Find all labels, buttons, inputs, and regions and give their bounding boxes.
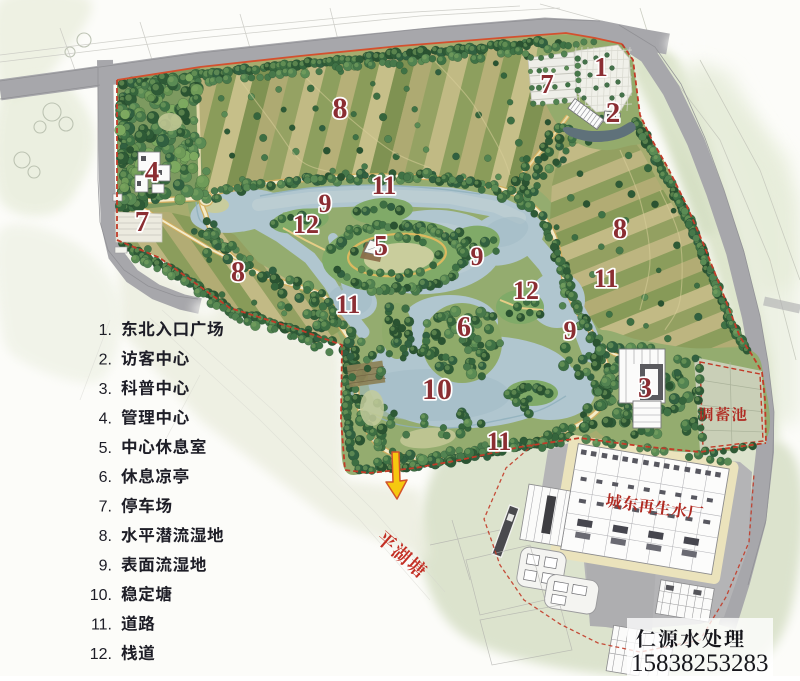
svg-text:6: 6: [457, 312, 471, 343]
svg-text:7: 7: [135, 206, 150, 238]
svg-text:8: 8: [333, 92, 348, 125]
svg-text:5: 5: [374, 231, 388, 262]
svg-text:9: 9: [564, 316, 577, 345]
svg-text:2: 2: [606, 97, 621, 129]
svg-text:4: 4: [145, 156, 160, 188]
svg-text:11: 11: [336, 290, 361, 319]
svg-text:12: 12: [293, 210, 319, 239]
svg-text:3.: 3.: [99, 381, 112, 398]
svg-text:11: 11: [372, 171, 397, 200]
svg-text:9.: 9.: [99, 558, 112, 575]
svg-text:8: 8: [231, 257, 245, 288]
svg-text:8.: 8.: [99, 528, 112, 545]
svg-text:8: 8: [613, 214, 627, 245]
svg-text:9: 9: [471, 242, 484, 271]
svg-text:1: 1: [594, 52, 608, 82]
svg-text:6.: 6.: [99, 469, 112, 486]
svg-text:3: 3: [638, 373, 652, 404]
svg-text:1.: 1.: [99, 322, 112, 339]
svg-text:5.: 5.: [99, 440, 112, 457]
svg-text:7: 7: [540, 69, 554, 99]
svg-text:11.: 11.: [91, 617, 112, 634]
svg-text:4.: 4.: [99, 410, 112, 427]
svg-text:11: 11: [487, 427, 512, 456]
svg-text:10.: 10.: [90, 587, 112, 604]
svg-text:9: 9: [319, 189, 332, 218]
svg-text:11: 11: [594, 264, 619, 293]
svg-text:15838253283: 15838253283: [631, 650, 769, 676]
svg-text:12.: 12.: [90, 646, 112, 663]
svg-text:7.: 7.: [99, 499, 112, 516]
svg-text:12: 12: [513, 276, 539, 305]
svg-text:10: 10: [422, 373, 452, 406]
svg-text:2.: 2.: [99, 351, 112, 368]
